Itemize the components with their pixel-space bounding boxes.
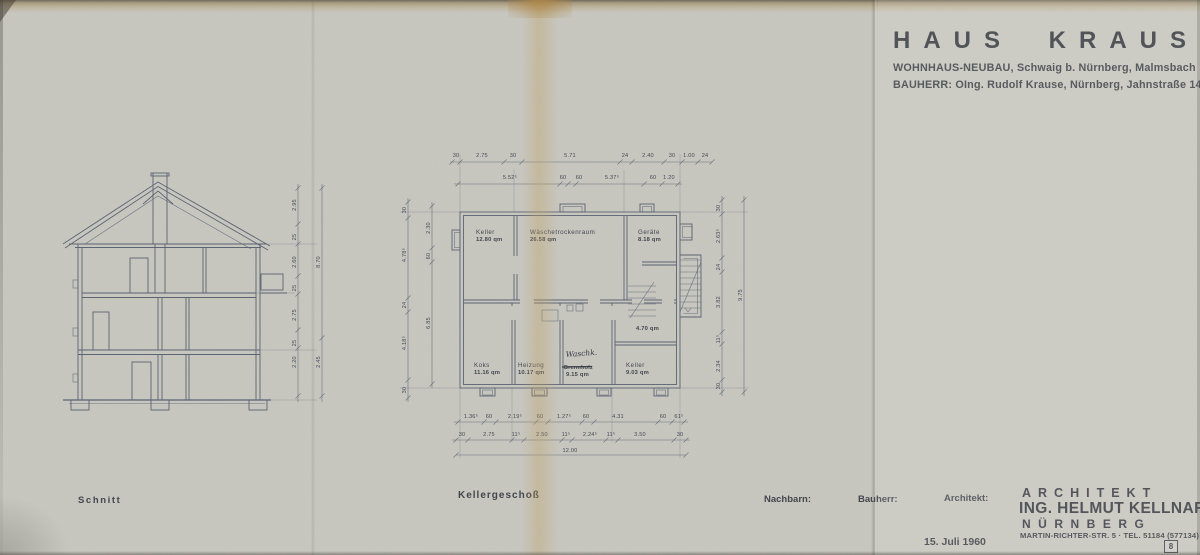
dim-label: 1.00 [683, 153, 695, 159]
room-area-keller1: 12.80 qm [476, 237, 502, 243]
dim-label: 30 [716, 383, 722, 390]
room-name-koks: Koks [474, 362, 490, 369]
dim-label: 2.63⁵ [715, 229, 722, 243]
room-name-geraete: Geräte [638, 229, 660, 236]
room-area-keller2: 9.03 qm [626, 370, 649, 376]
dim-label: 24 [702, 153, 709, 159]
section-dimensions: 2.95 25 2.60 25 2.75 25 2.20 8.70 2.45 [78, 184, 325, 402]
dim-label: 24 [402, 302, 408, 309]
right-panel-lightening [878, 0, 1200, 555]
dim-label: 2.40 [642, 153, 654, 159]
dim-label: 60 [583, 414, 590, 420]
dim-label: 60 [650, 175, 657, 181]
dim-label: 3.50 [634, 432, 646, 438]
dim-label: 9.75 [738, 289, 744, 301]
dim-label: 2.75 [476, 153, 488, 159]
dim-label: 60 [560, 175, 567, 181]
plan-room-labels: Keller 12.80 qm Wäschetrockenraum 26.58 … [474, 229, 661, 378]
room-area-koks: 11.16 qm [474, 370, 500, 376]
center-fold-stain [522, 0, 558, 555]
dim-label: 2.30 [426, 222, 432, 234]
dim-label: 2.34 [716, 360, 722, 372]
dim-label: 11⁵ [607, 431, 616, 438]
dim-label: 2.19⁵ [508, 413, 522, 420]
blueprint-sheet: 2.95 25 2.60 25 2.75 25 2.20 8.70 2.45 [0, 0, 1200, 555]
dim-label: 8.70 [316, 256, 322, 268]
center-fold-stain-top [508, 0, 572, 18]
room-area-flur: 4.70 qm [636, 326, 659, 332]
neighbors-label: Nachbarn: [764, 494, 811, 505]
dim-label: 4.18⁵ [401, 336, 408, 350]
dim-label: 24 [716, 264, 722, 271]
dim-label: 2.60 [292, 256, 298, 268]
dim-label: 60 [576, 175, 583, 181]
dim-label: 30 [716, 205, 722, 212]
dim-label: 30 [677, 432, 684, 438]
dim-label: 6.85 [426, 317, 432, 329]
bottom-left-corner-shadow [0, 495, 70, 555]
dim-label: 11⁵ [715, 335, 722, 344]
dim-label: 11⁵ [512, 431, 521, 438]
room-struck-label: Brennholz [564, 365, 593, 371]
room-name-keller2: Keller [626, 362, 645, 369]
room-handwritten-waschkueche: Waschk. [566, 348, 598, 359]
dim-label: 30 [669, 153, 676, 159]
section-label: Schnitt [78, 495, 121, 506]
dim-label: 61⁵ [674, 413, 683, 420]
dim-label: 4.31 [612, 414, 624, 420]
dim-label: 1.27⁵ [557, 413, 571, 420]
dim-label: 60 [660, 414, 667, 420]
right-fold-crease [871, 0, 878, 555]
strikethrough-line [562, 367, 592, 368]
bottom-edge-shadow [0, 551, 1200, 555]
section-house [63, 173, 287, 410]
dim-label: 2.75 [483, 432, 495, 438]
dim-label: 1.36⁵ [464, 413, 478, 420]
left-fold-crease [311, 0, 315, 555]
section-drawing: 2.95 25 2.60 25 2.75 25 2.20 8.70 2.45 [55, 160, 345, 430]
dim-label: 60 [426, 253, 432, 260]
dim-label: 3.82 [716, 296, 722, 308]
room-area-waschkueche: 9.15 qm [566, 372, 589, 378]
left-edge-shadow [0, 0, 3, 555]
dim-label: 2.20 [292, 356, 298, 368]
dim-label: 2.95 [292, 199, 298, 211]
dim-label: 30 [402, 207, 408, 214]
dim-label: 25 [292, 340, 298, 347]
floor-plan: 30 2.75 30 5.71 24 2.40 30 1.00 24 5.52⁵… [392, 140, 772, 470]
dim-label: 5.37⁵ [605, 174, 619, 181]
plan-stairs [628, 260, 701, 318]
dim-label: 30 [459, 432, 466, 438]
dim-label: 4.78⁵ [401, 248, 408, 262]
dim-label: 5.71 [564, 153, 576, 159]
dim-label: 30 [402, 387, 408, 394]
plan-dimensions: 30 2.75 30 5.71 24 2.40 30 1.00 24 5.52⁵… [400, 153, 748, 458]
dim-label: 25 [292, 234, 298, 241]
room-name-keller1: Keller [476, 229, 495, 236]
dim-label: 2.24⁵ [583, 431, 597, 438]
dim-label: 1.20 [663, 175, 675, 181]
dim-label: 2.45 [316, 356, 322, 368]
dim-label: 30 [453, 153, 460, 159]
room-area-geraete: 8.18 qm [638, 237, 661, 243]
dim-label: 60 [486, 414, 493, 420]
dim-label: 11⁵ [562, 431, 571, 438]
dim-label: 30 [510, 153, 517, 159]
dim-label: 2.75 [292, 309, 298, 321]
dim-label: 5.52⁵ [503, 174, 517, 181]
dim-label: 25 [292, 285, 298, 292]
dim-label: 24 [622, 153, 629, 159]
dim-label: 12.00 [563, 448, 578, 454]
